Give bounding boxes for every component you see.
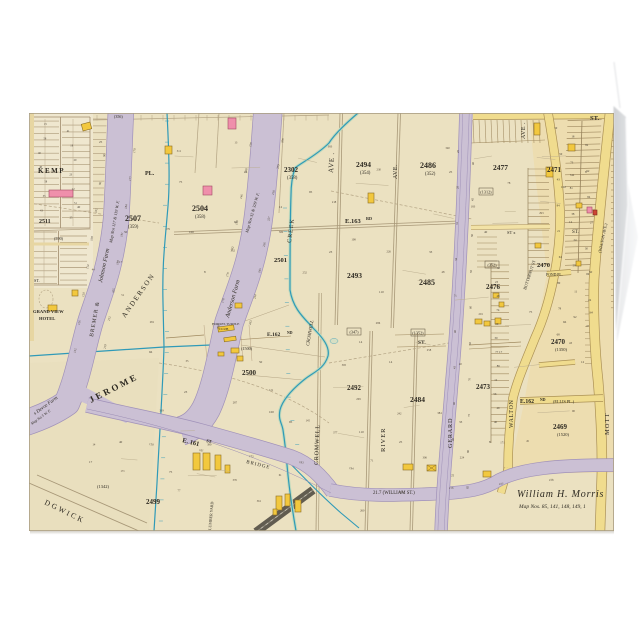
- svg-text:29: 29: [495, 322, 499, 326]
- svg-text:260: 260: [360, 509, 365, 513]
- svg-text:(1342): (1342): [97, 484, 109, 489]
- svg-text:40: 40: [484, 230, 488, 234]
- svg-text:PL.: PL.: [145, 171, 155, 177]
- svg-text:2492: 2492: [347, 384, 362, 392]
- svg-text:40: 40: [471, 162, 475, 166]
- svg-text:(1352): (1352): [412, 330, 424, 335]
- svg-text:50: 50: [470, 234, 474, 238]
- svg-text:18: 18: [571, 135, 575, 139]
- svg-text:127: 127: [201, 206, 206, 210]
- svg-text:380: 380: [279, 230, 284, 234]
- svg-text:78: 78: [558, 307, 562, 311]
- svg-text:2302: 2302: [284, 166, 299, 174]
- svg-text:(1500): (1500): [241, 346, 253, 351]
- svg-text:45: 45: [470, 198, 474, 202]
- svg-text:65: 65: [468, 342, 472, 346]
- svg-text:75: 75: [529, 310, 533, 314]
- svg-text:Map Nos. 85, 141, 148, 149, 1: Map Nos. 85, 141, 148, 149, 1: [518, 503, 586, 510]
- svg-text:2501: 2501: [274, 257, 287, 264]
- svg-text:34: 34: [454, 258, 458, 262]
- svg-text:75: 75: [467, 414, 471, 418]
- svg-text:50: 50: [124, 230, 128, 234]
- svg-text:25: 25: [399, 440, 403, 444]
- svg-text:(356): (356): [114, 114, 123, 119]
- svg-text:30: 30: [585, 246, 589, 250]
- svg-text:33: 33: [429, 250, 433, 254]
- svg-text:(352): (352): [425, 172, 436, 177]
- svg-text:224: 224: [460, 456, 465, 460]
- svg-text:AVE.: AVE.: [393, 164, 399, 179]
- svg-text:92: 92: [574, 315, 578, 319]
- svg-text:2477: 2477: [493, 163, 508, 172]
- svg-text:70: 70: [467, 378, 471, 382]
- svg-text:(354): (354): [360, 171, 371, 176]
- svg-text:227: 227: [499, 482, 504, 486]
- svg-text:HOTEL: HOTEL: [39, 316, 55, 321]
- svg-text:50: 50: [554, 126, 558, 130]
- svg-text:ST.: ST.: [34, 278, 40, 283]
- svg-text:2511: 2511: [39, 219, 51, 225]
- svg-text:38: 38: [571, 212, 575, 216]
- svg-text:2493: 2493: [347, 271, 362, 280]
- svg-text:383: 383: [328, 145, 333, 149]
- svg-text:40: 40: [119, 440, 123, 444]
- svg-text:74: 74: [496, 308, 500, 312]
- svg-text:209: 209: [356, 397, 361, 401]
- svg-text:2470: 2470: [537, 262, 550, 269]
- svg-text:84: 84: [587, 195, 591, 199]
- svg-text:E.162: E.162: [267, 332, 281, 338]
- svg-text:POND PL.: POND PL.: [546, 273, 563, 277]
- svg-text:108: 108: [351, 238, 356, 242]
- svg-text:William H. Morris: William H. Morris: [517, 489, 604, 500]
- svg-text:164: 164: [589, 310, 594, 314]
- svg-text:RIVER: RIVER: [380, 428, 387, 453]
- svg-text:21: 21: [557, 229, 561, 233]
- svg-text:59: 59: [573, 264, 577, 268]
- svg-text:226: 226: [387, 250, 392, 254]
- svg-text:KEMP: KEMP: [38, 167, 65, 175]
- svg-text:86: 86: [497, 364, 501, 368]
- svg-text:23: 23: [495, 280, 499, 284]
- svg-text:145: 145: [306, 418, 311, 422]
- svg-text:31: 31: [455, 222, 459, 226]
- svg-text:30: 30: [495, 336, 499, 340]
- svg-text:82: 82: [585, 143, 589, 147]
- svg-text:(358): (358): [195, 215, 206, 220]
- svg-text:47: 47: [586, 324, 590, 328]
- svg-text:306: 306: [423, 455, 428, 459]
- svg-text:60: 60: [469, 306, 473, 310]
- svg-text:286: 286: [376, 321, 381, 325]
- svg-text:2471: 2471: [547, 166, 562, 174]
- svg-text:14: 14: [359, 340, 363, 344]
- svg-text:293: 293: [539, 211, 544, 215]
- svg-text:171: 171: [500, 440, 505, 444]
- svg-text:25: 25: [449, 170, 453, 174]
- svg-text:75: 75: [169, 470, 173, 474]
- svg-text:ND: ND: [540, 398, 546, 402]
- svg-text:95: 95: [289, 420, 293, 424]
- svg-text:40: 40: [494, 420, 498, 424]
- svg-text:(359): (359): [128, 225, 139, 230]
- svg-text:110: 110: [359, 430, 364, 434]
- svg-text:361: 361: [257, 499, 262, 503]
- svg-text:AVE .: AVE .: [521, 122, 527, 139]
- svg-text:(1312): (1312): [480, 189, 492, 194]
- svg-text:377: 377: [333, 430, 338, 434]
- svg-text:(ELLIS PL.): (ELLIS PL.): [553, 399, 575, 404]
- svg-text:75: 75: [179, 180, 183, 184]
- svg-text:49: 49: [497, 406, 501, 410]
- svg-text:242: 242: [397, 412, 402, 416]
- svg-text:25: 25: [99, 140, 103, 144]
- svg-text:52: 52: [451, 474, 455, 478]
- svg-text:GERARD: GERARD: [447, 418, 454, 448]
- svg-text:100: 100: [269, 410, 274, 414]
- svg-text:(352): (352): [487, 262, 497, 267]
- svg-text:2473: 2473: [476, 383, 491, 391]
- svg-text:ST.: ST.: [572, 230, 579, 235]
- svg-text:17: 17: [89, 460, 93, 464]
- svg-text:24: 24: [588, 298, 592, 302]
- svg-text:RD: RD: [366, 216, 372, 221]
- svg-text:384: 384: [437, 411, 442, 415]
- svg-text:CLUB: CLUB: [219, 327, 229, 331]
- svg-text:E.162: E.162: [520, 399, 534, 405]
- svg-text:73: 73: [570, 160, 574, 164]
- svg-text:23: 23: [184, 390, 188, 394]
- svg-text:183: 183: [471, 204, 476, 208]
- svg-text:27: 27: [590, 221, 594, 225]
- svg-text:216: 216: [449, 486, 454, 490]
- svg-text:(1520): (1520): [557, 432, 569, 437]
- svg-text:37: 37: [454, 294, 458, 298]
- svg-text:WALTON: WALTON: [509, 399, 515, 428]
- svg-text:28: 28: [455, 186, 459, 190]
- svg-text:281: 281: [150, 320, 155, 324]
- svg-text:110: 110: [379, 290, 384, 294]
- svg-text:100: 100: [189, 230, 194, 234]
- svg-text:81: 81: [570, 186, 574, 190]
- svg-text:66: 66: [149, 350, 153, 354]
- svg-text:390: 390: [207, 442, 212, 446]
- svg-text:238: 238: [549, 478, 554, 482]
- svg-text:AVE .: AVE .: [327, 152, 336, 173]
- svg-text:ND: ND: [287, 331, 293, 335]
- svg-text:25: 25: [456, 150, 460, 154]
- svg-text:2500: 2500: [242, 369, 257, 377]
- svg-text:14: 14: [389, 360, 393, 364]
- svg-text:2494: 2494: [356, 160, 371, 169]
- svg-text:258: 258: [427, 348, 432, 352]
- svg-text:230: 230: [377, 168, 382, 172]
- svg-text:287: 287: [233, 401, 238, 405]
- svg-text:2486: 2486: [420, 161, 436, 170]
- svg-text:(590): (590): [54, 236, 64, 241]
- svg-text:12: 12: [581, 360, 585, 364]
- svg-text:171: 171: [120, 469, 125, 473]
- svg-text:12: 12: [494, 378, 498, 382]
- svg-text:23: 23: [329, 250, 333, 254]
- svg-text:2469: 2469: [553, 423, 568, 431]
- svg-text:64: 64: [559, 255, 563, 259]
- svg-text:43: 43: [452, 366, 456, 370]
- svg-text:33: 33: [459, 420, 463, 424]
- svg-text:84: 84: [557, 203, 561, 207]
- svg-text:43: 43: [557, 178, 561, 182]
- svg-text:55: 55: [469, 270, 473, 274]
- svg-text:205: 205: [399, 490, 404, 494]
- svg-text:218: 218: [332, 200, 337, 204]
- svg-text:69: 69: [586, 272, 590, 276]
- svg-text:2507: 2507: [125, 214, 141, 223]
- svg-text:48: 48: [497, 294, 501, 298]
- svg-text:77: 77: [495, 350, 499, 354]
- svg-text:66: 66: [563, 320, 567, 324]
- svg-text:319: 319: [159, 409, 164, 413]
- svg-text:12: 12: [279, 205, 283, 209]
- svg-text:24: 24: [574, 238, 578, 242]
- svg-text:46: 46: [452, 402, 456, 406]
- svg-text:344: 344: [570, 173, 575, 177]
- svg-text:80: 80: [557, 281, 561, 285]
- svg-text:179: 179: [166, 227, 171, 231]
- svg-text:2499: 2499: [146, 498, 161, 506]
- svg-text:92: 92: [586, 169, 590, 173]
- svg-text:395: 395: [342, 363, 347, 367]
- svg-text:80: 80: [466, 450, 470, 454]
- svg-text:40: 40: [77, 205, 81, 209]
- svg-text:68: 68: [557, 332, 561, 336]
- svg-text:376: 376: [233, 478, 238, 482]
- svg-text:17: 17: [499, 350, 503, 354]
- svg-text:GRAND VIEW: GRAND VIEW: [33, 309, 64, 314]
- svg-text:100: 100: [561, 185, 566, 189]
- svg-text:(358): (358): [287, 176, 298, 181]
- svg-text:50: 50: [259, 360, 263, 364]
- svg-text:50: 50: [559, 152, 563, 156]
- svg-text:(1350): (1350): [555, 347, 567, 352]
- svg-text:311: 311: [177, 149, 182, 153]
- svg-text:85: 85: [466, 486, 470, 490]
- svg-text:2484: 2484: [410, 395, 425, 404]
- svg-text:32: 32: [497, 266, 501, 270]
- svg-text:95: 95: [309, 190, 313, 194]
- svg-text:ST x: ST x: [507, 230, 516, 235]
- svg-text:2470: 2470: [551, 338, 566, 346]
- svg-text:12: 12: [569, 220, 573, 224]
- svg-text:(347): (347): [349, 329, 359, 334]
- svg-text:MOTT: MOTT: [604, 413, 611, 435]
- svg-text:11: 11: [574, 289, 577, 293]
- svg-text:49: 49: [451, 438, 455, 442]
- svg-text:50: 50: [589, 270, 593, 274]
- svg-text:56: 56: [493, 392, 497, 396]
- svg-text:2476: 2476: [486, 283, 501, 291]
- svg-text:43: 43: [569, 341, 573, 345]
- svg-text:E.163: E.163: [345, 218, 361, 225]
- svg-text:40: 40: [453, 330, 457, 334]
- svg-text:2485: 2485: [419, 278, 435, 287]
- svg-text:ST.: ST.: [590, 115, 599, 122]
- svg-text:21.7 (WILLIAM ST.): 21.7 (WILLIAM ST.): [373, 491, 415, 496]
- svg-text:252: 252: [303, 270, 308, 274]
- svg-text:340: 340: [445, 146, 450, 150]
- svg-text:352: 352: [231, 248, 236, 252]
- svg-text:291: 291: [479, 312, 484, 316]
- svg-text:121: 121: [269, 388, 274, 392]
